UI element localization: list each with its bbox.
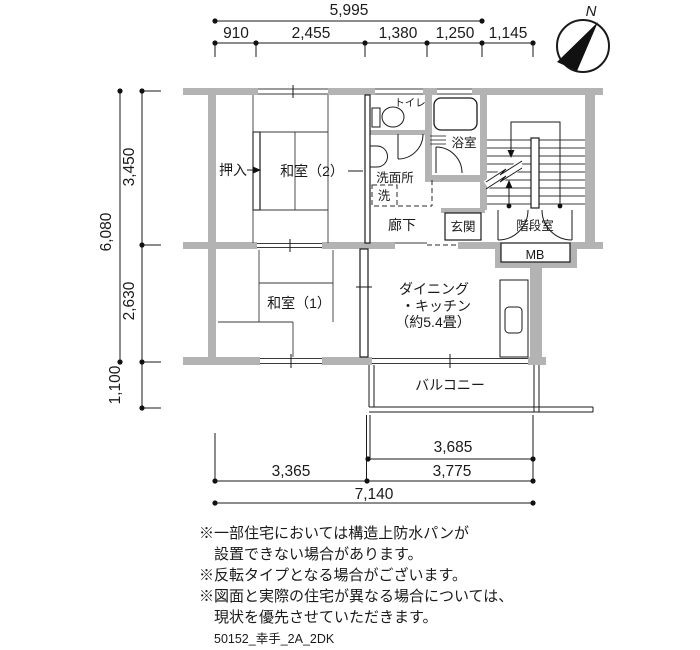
dim-dot	[364, 478, 369, 483]
dim-dot	[530, 500, 535, 505]
wall	[183, 242, 257, 249]
dim-bottom-balcony: 3,685	[434, 439, 473, 456]
room-label-entrance: 玄関	[450, 219, 475, 234]
dim-dot	[139, 405, 144, 410]
arrow-up-icon	[506, 180, 513, 188]
dim-top-seg-0: 910	[223, 25, 249, 42]
room-label-washing-machine: 洗	[378, 189, 391, 203]
floor-plan-drawing: 5,995 910 2,455 1,380 1,250 1,145 N	[0, 0, 700, 650]
dim-bottom-left: 3,365	[272, 463, 311, 480]
wall	[183, 357, 260, 365]
dim-dot	[530, 478, 535, 483]
room-label-dining-3: （約5.4畳）	[395, 314, 470, 330]
wall	[183, 88, 258, 95]
wall	[208, 88, 216, 365]
door-arc	[436, 147, 462, 173]
stair-dot	[507, 204, 512, 209]
notes: ※一部住宅においては構造上防水パンが 設置できない場合があります。 ※反転タイプ…	[199, 525, 513, 646]
room-label-meter-box: MB	[526, 248, 545, 262]
toilet-tank	[372, 108, 380, 127]
wall	[480, 95, 487, 210]
dim-top-total: 5,995	[330, 2, 369, 19]
dim-dot	[530, 456, 535, 461]
room-label-dining-1: ダイニング	[399, 281, 469, 297]
dim-dot	[117, 88, 122, 93]
wall	[458, 242, 501, 249]
compass-north-label: N	[586, 3, 597, 20]
room-label-washroom: 洗面所	[376, 171, 414, 185]
wall	[425, 175, 486, 182]
dim-top-seg-1: 2,455	[292, 25, 331, 42]
note-line-5: 現状を優先させていただきます。	[214, 609, 438, 626]
dim-dot	[139, 242, 144, 247]
bath-step-lines	[430, 136, 446, 144]
door-arc	[398, 134, 423, 159]
partitions	[253, 95, 372, 357]
note-line-1: ※一部住宅においては構造上防水パンが	[199, 525, 469, 542]
room-label-japanese-room-2: 和室（2）	[280, 163, 344, 179]
dim-dot	[117, 359, 122, 364]
stair-divider	[531, 138, 539, 208]
break-mask	[486, 164, 522, 185]
dim-top-seg-3: 1,250	[436, 25, 475, 42]
toilet-bowl	[382, 107, 404, 127]
dim-bottom-right: 3,775	[433, 463, 472, 480]
wall	[423, 88, 437, 95]
wall	[322, 242, 395, 249]
room-label-japanese-room-1: 和室（1）	[267, 295, 331, 311]
dimension-bottom: 3,685 3,365 3,775 7,140	[212, 415, 535, 506]
dim-top-seg-4: 1,145	[489, 25, 528, 42]
wall	[530, 262, 542, 360]
room-label-stairwell: 階段室	[516, 218, 554, 233]
drawing-code: 50152_幸手_2A_2DK	[214, 632, 335, 646]
dim-dot	[212, 500, 217, 505]
dim-dot	[365, 456, 370, 461]
stair-dot	[558, 204, 563, 209]
dim-top-seg-2: 1,380	[379, 25, 418, 42]
wall	[570, 242, 577, 263]
dim-dot	[139, 359, 144, 364]
note-line-3: ※反転タイプとなる場合がございます。	[199, 566, 467, 584]
arrow-down-icon	[508, 150, 515, 158]
wall	[441, 208, 485, 213]
note-line-4: ※図面と実際の住宅が異なる場合については、	[199, 588, 513, 605]
wall	[585, 88, 595, 247]
dim-left-upper: 3,450	[121, 147, 138, 186]
bathtub	[434, 98, 477, 130]
dim-dot	[212, 478, 217, 483]
wall	[495, 242, 501, 263]
room-label-balcony: バルコニー	[415, 377, 485, 393]
staircase	[486, 122, 585, 208]
floor-plan-page: 5,995 910 2,455 1,380 1,250 1,145 N	[0, 0, 700, 650]
dim-bottom-total: 7,140	[355, 486, 394, 503]
room-label-bath: 浴室	[451, 135, 476, 150]
dim-dot	[212, 18, 217, 23]
wall	[322, 357, 372, 365]
room-label-closet: 押入	[219, 162, 247, 178]
dim-left-lower: 1,100	[107, 365, 124, 404]
dimension-top: 5,995 910 2,455 1,380 1,250 1,145	[212, 2, 535, 57]
tatami-lines	[218, 95, 333, 357]
kitchen-counter	[500, 280, 528, 357]
dim-left-total: 6,080	[98, 212, 115, 251]
wall	[528, 357, 546, 365]
dim-dot	[479, 18, 484, 23]
dim-left-middle: 2,630	[121, 281, 138, 320]
partition-wall	[365, 95, 370, 243]
wall	[472, 88, 603, 95]
room-label-dining-2: ・キッチン	[401, 298, 471, 314]
note-line-2: 設置できない場合があります。	[214, 546, 423, 563]
dim-dot	[139, 88, 144, 93]
wall	[328, 88, 375, 95]
compass: N	[557, 3, 609, 72]
room-label-hallway: 廊下	[388, 217, 416, 233]
wall	[425, 95, 432, 180]
washbasin	[370, 146, 388, 167]
kitchen-sink	[505, 307, 522, 333]
dimension-left: 6,080 3,450 2,630 1,100	[98, 88, 161, 410]
partition-wall	[360, 249, 368, 357]
dim-extension-ticks	[144, 91, 161, 408]
room-label-toilet: トイレ	[394, 97, 426, 109]
dim-extension-ticks	[215, 44, 533, 57]
